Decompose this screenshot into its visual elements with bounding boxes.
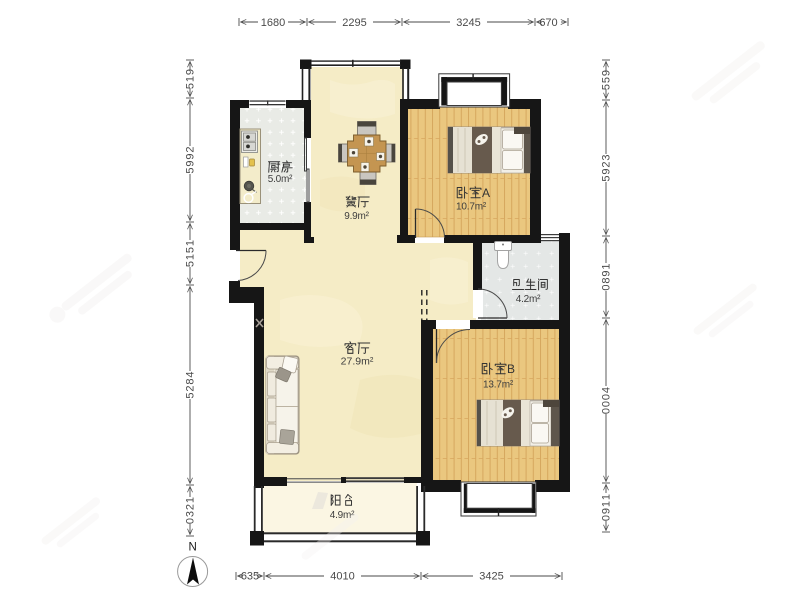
svg-text:1: 1 — [601, 263, 613, 269]
svg-text:1: 1 — [601, 494, 613, 500]
svg-text:9: 9 — [601, 168, 613, 174]
svg-text:8: 8 — [601, 277, 613, 283]
svg-text:10.7m²: 10.7m² — [456, 202, 487, 213]
svg-text:3: 3 — [185, 511, 197, 517]
svg-text:1: 1 — [185, 497, 197, 503]
svg-text:0: 0 — [601, 401, 613, 407]
svg-text:13.7m²: 13.7m² — [483, 380, 514, 391]
svg-text:670: 670 — [539, 17, 557, 29]
svg-text:4: 4 — [601, 387, 613, 393]
svg-text:B: B — [507, 362, 515, 376]
svg-text:4.2m²: 4.2m² — [516, 294, 541, 305]
svg-text:1680: 1680 — [261, 17, 285, 29]
svg-text:A: A — [482, 186, 490, 200]
svg-text:4010: 4010 — [330, 571, 354, 583]
svg-text:2295: 2295 — [342, 17, 366, 29]
svg-text:5: 5 — [185, 247, 197, 253]
svg-text:9: 9 — [185, 160, 197, 166]
svg-text:635: 635 — [241, 571, 259, 583]
svg-text:9: 9 — [601, 270, 613, 276]
svg-text:5: 5 — [601, 77, 613, 83]
svg-text:2: 2 — [185, 504, 197, 510]
svg-text:3245: 3245 — [456, 17, 480, 29]
svg-text:2: 2 — [185, 146, 197, 152]
svg-text:5: 5 — [185, 167, 197, 173]
svg-text:5.0m²: 5.0m² — [268, 174, 293, 185]
svg-text:1: 1 — [185, 240, 197, 246]
svg-text:5: 5 — [185, 83, 197, 89]
svg-text:4: 4 — [185, 371, 197, 377]
svg-text:3425: 3425 — [479, 571, 503, 583]
svg-text:2: 2 — [601, 161, 613, 167]
svg-text:27.9m²: 27.9m² — [341, 356, 374, 368]
svg-text:1: 1 — [185, 76, 197, 82]
svg-text:9: 9 — [601, 70, 613, 76]
svg-text:0: 0 — [601, 515, 613, 521]
svg-text:2: 2 — [185, 385, 197, 391]
svg-text:1: 1 — [185, 254, 197, 260]
svg-text:0: 0 — [601, 408, 613, 414]
svg-text:5: 5 — [185, 392, 197, 398]
svg-text:9: 9 — [601, 508, 613, 514]
svg-text:N: N — [188, 542, 196, 554]
svg-text:5: 5 — [601, 175, 613, 181]
svg-text:9.9m²: 9.9m² — [344, 211, 369, 222]
svg-text:0: 0 — [185, 518, 197, 524]
svg-text:5: 5 — [601, 84, 613, 90]
svg-text:1: 1 — [601, 501, 613, 507]
svg-text:8: 8 — [185, 378, 197, 384]
svg-text:3: 3 — [601, 154, 613, 160]
svg-text:0: 0 — [601, 284, 613, 290]
svg-text:9: 9 — [185, 69, 197, 75]
svg-text:9: 9 — [185, 153, 197, 159]
svg-text:5: 5 — [185, 261, 197, 267]
svg-text:0: 0 — [601, 394, 613, 400]
